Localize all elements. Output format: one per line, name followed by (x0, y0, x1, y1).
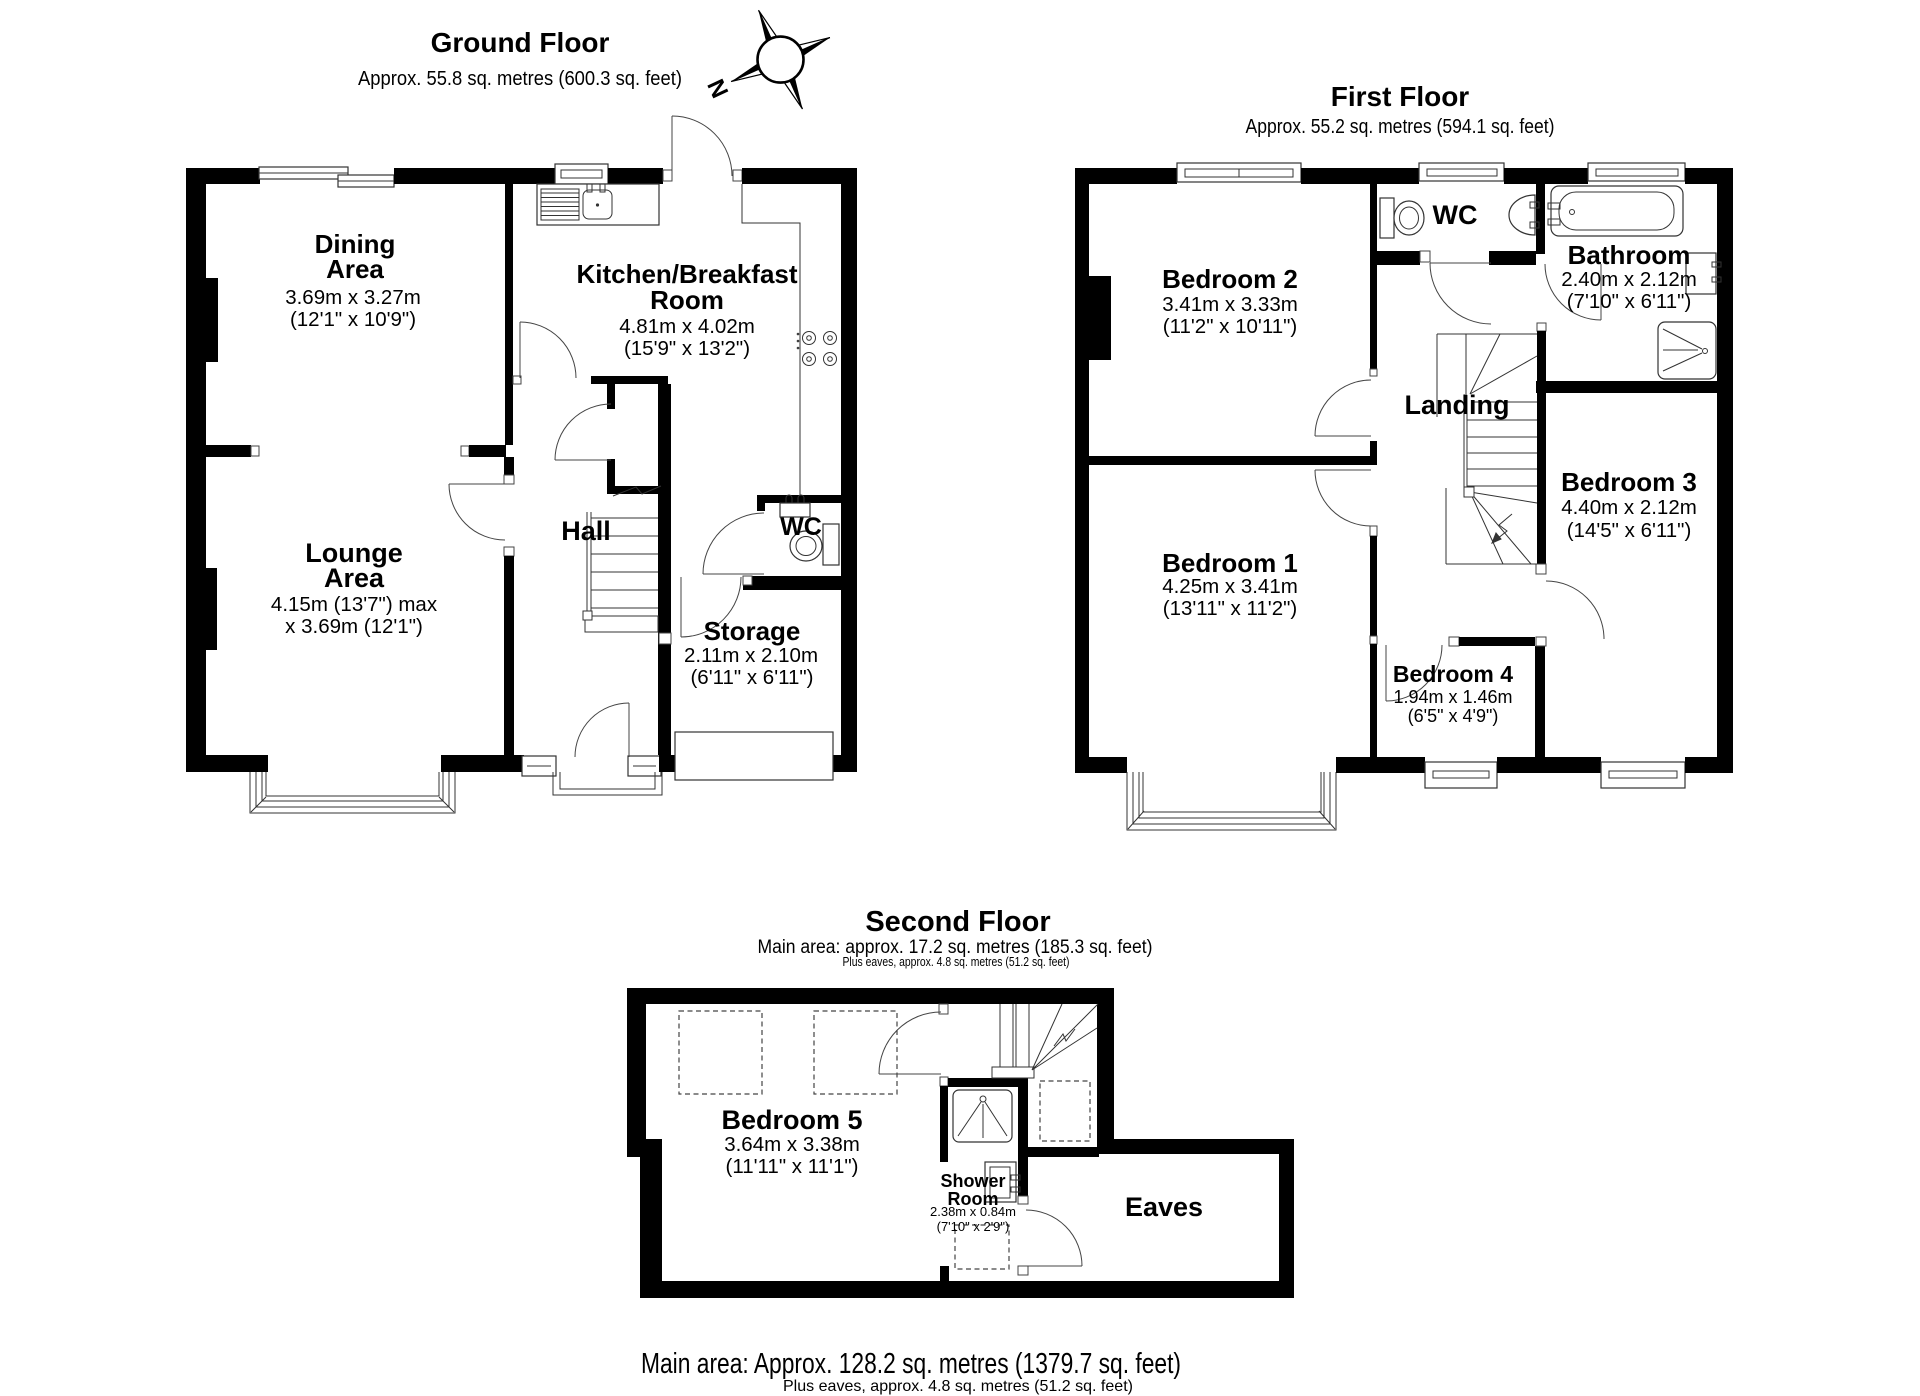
svg-text:(6'5" x 4'9"): (6'5" x 4'9") (1408, 706, 1499, 726)
svg-text:Second Floor: Second Floor (865, 906, 1050, 938)
svg-text:Main area: Approx. 128.2 sq. m: Main area: Approx. 128.2 sq. metres (137… (641, 1348, 1181, 1380)
svg-text:Bedroom 1: Bedroom 1 (1162, 548, 1298, 578)
svg-text:Approx. 55.2 sq. metres (594.1: Approx. 55.2 sq. metres (594.1 sq. feet) (1246, 116, 1555, 138)
svg-text:(13'11" x 11'2"): (13'11" x 11'2") (1163, 597, 1297, 620)
svg-text:(7'10" x 2'9"): (7'10" x 2'9") (937, 1219, 1010, 1234)
svg-text:1.94m x 1.46m: 1.94m x 1.46m (1393, 687, 1512, 707)
svg-text:(11'2" x 10'11"): (11'2" x 10'11") (1163, 315, 1297, 338)
svg-text:Bedroom 3: Bedroom 3 (1561, 467, 1697, 497)
svg-text:Room: Room (650, 285, 724, 315)
svg-text:(7'10" x 6'11"): (7'10" x 6'11") (1567, 290, 1692, 313)
svg-text:x 3.69m (12'1"): x 3.69m (12'1") (285, 615, 423, 638)
svg-text:Area: Area (326, 254, 384, 284)
svg-text:First Floor: First Floor (1331, 81, 1470, 112)
svg-text:Plus eaves, approx. 4.8 sq. me: Plus eaves, approx. 4.8 sq. metres (51.2… (783, 1378, 1133, 1395)
svg-text:(11'11" x 11'1"): (11'11" x 11'1") (726, 1155, 859, 1178)
svg-text:Area: Area (324, 563, 385, 593)
svg-text:4.81m x 4.02m: 4.81m x 4.02m (619, 315, 755, 338)
svg-text:3.41m x 3.33m: 3.41m x 3.33m (1162, 293, 1298, 316)
svg-text:4.15m (13'7") max: 4.15m (13'7") max (271, 593, 438, 616)
svg-text:Bedroom 4: Bedroom 4 (1393, 661, 1513, 687)
svg-text:(14'5" x 6'11"): (14'5" x 6'11") (1567, 519, 1692, 542)
svg-text:3.64m x 3.38m: 3.64m x 3.38m (724, 1133, 860, 1156)
svg-text:3.69m x 3.27m: 3.69m x 3.27m (285, 286, 421, 309)
svg-text:Bathroom: Bathroom (1568, 240, 1691, 270)
svg-text:4.25m x 3.41m: 4.25m x 3.41m (1162, 575, 1298, 598)
svg-text:Ground Floor: Ground Floor (431, 27, 610, 58)
svg-text:4.40m x 2.12m: 4.40m x 2.12m (1561, 496, 1697, 519)
svg-text:Hall: Hall (561, 516, 611, 546)
svg-text:2.40m x 2.12m: 2.40m x 2.12m (1561, 268, 1697, 291)
svg-text:2.11m x 2.10m: 2.11m x 2.10m (684, 644, 818, 667)
svg-text:Eaves: Eaves (1125, 1192, 1203, 1222)
svg-text:(6'11" x 6'11"): (6'11" x 6'11") (690, 666, 813, 689)
svg-text:Approx. 55.8 sq. metres (600.3: Approx. 55.8 sq. metres (600.3 sq. feet) (358, 68, 682, 90)
svg-text:2.38m x 0.84m: 2.38m x 0.84m (930, 1204, 1016, 1219)
svg-text:Landing: Landing (1405, 390, 1510, 420)
svg-text:(15'9" x 13'2"): (15'9" x 13'2") (624, 337, 750, 360)
svg-text:Bedroom 2: Bedroom 2 (1162, 264, 1298, 294)
svg-text:(12'1" x 10'9"): (12'1" x 10'9") (290, 308, 416, 331)
svg-text:Shower: Shower (940, 1171, 1005, 1191)
svg-text:WC: WC (780, 513, 822, 541)
svg-text:Storage: Storage (704, 616, 801, 646)
svg-text:WC: WC (1433, 200, 1478, 230)
svg-text:Bedroom 5: Bedroom 5 (721, 1105, 862, 1135)
svg-text:Plus eaves, approx. 4.8 sq. me: Plus eaves, approx. 4.8 sq. metres (51.2… (843, 954, 1070, 969)
